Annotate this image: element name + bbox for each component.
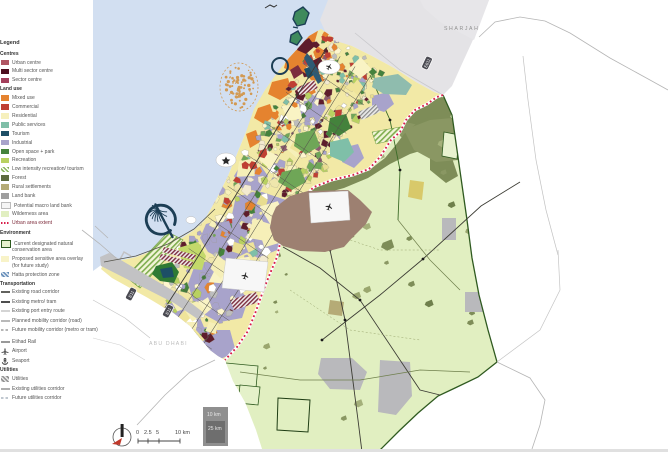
svg-text:SHARJAH: SHARJAH [444, 26, 479, 32]
svg-text:10 km: 10 km [175, 430, 190, 436]
svg-text:10 km: 10 km [207, 412, 221, 418]
svg-text:0: 0 [136, 430, 139, 436]
svg-text:25 km: 25 km [208, 426, 222, 432]
svg-text:2.5: 2.5 [144, 430, 152, 436]
svg-text:5: 5 [156, 430, 159, 436]
svg-text:ABU DHABI: ABU DHABI [149, 341, 188, 347]
